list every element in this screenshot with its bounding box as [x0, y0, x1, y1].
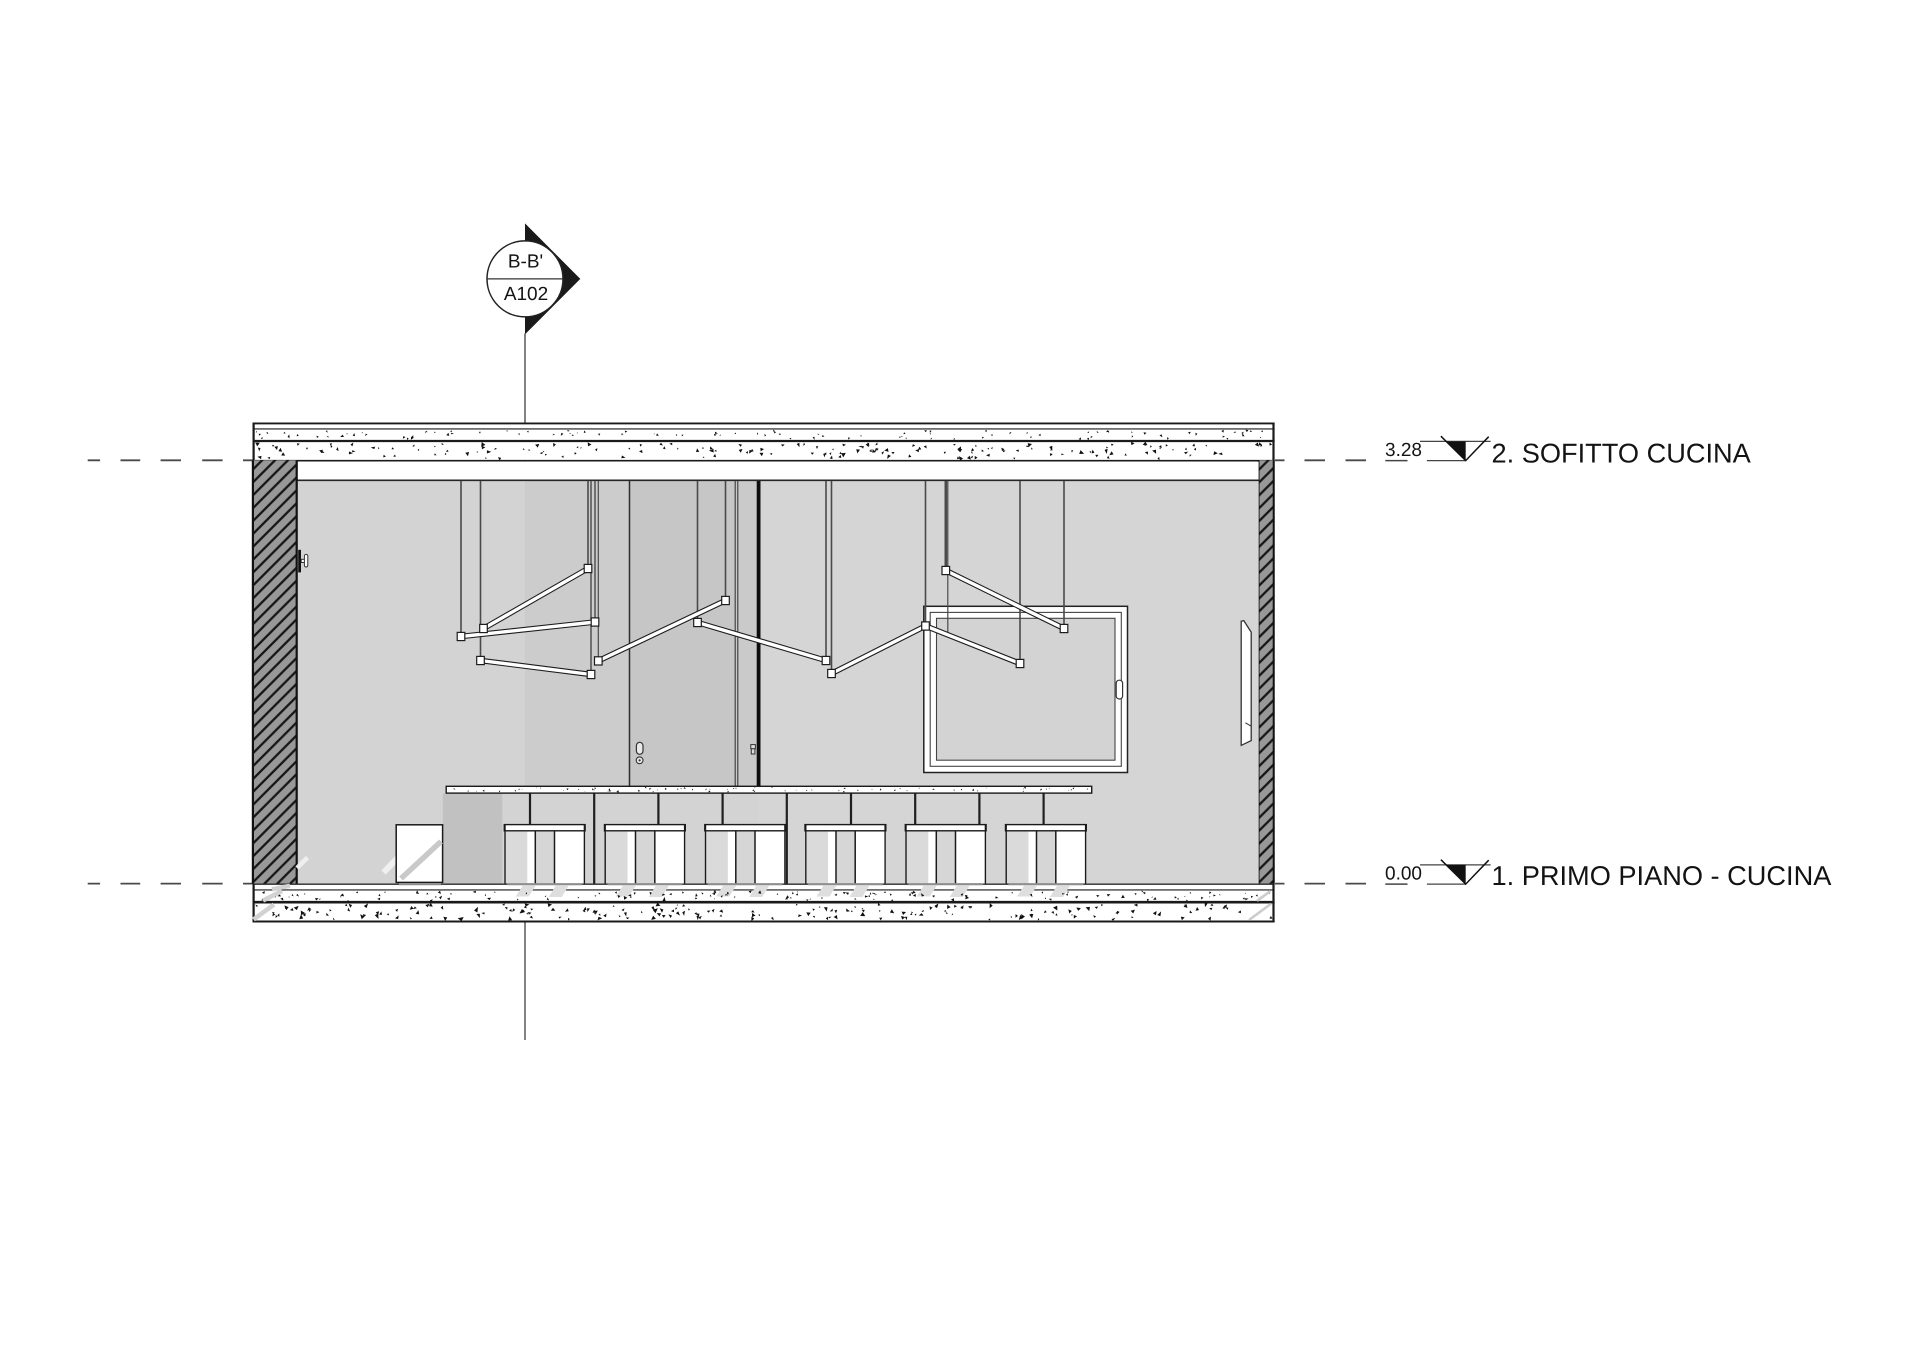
svg-text:A102: A102 [504, 284, 548, 305]
svg-text:3.28: 3.28 [1385, 440, 1422, 461]
svg-text:0.00: 0.00 [1385, 864, 1422, 885]
svg-text:B-B': B-B' [508, 252, 543, 273]
svg-text:1. PRIMO PIANO - CUCINA: 1. PRIMO PIANO - CUCINA [1492, 860, 1833, 891]
svg-text:2. SOFITTO CUCINA: 2. SOFITTO CUCINA [1492, 437, 1752, 468]
